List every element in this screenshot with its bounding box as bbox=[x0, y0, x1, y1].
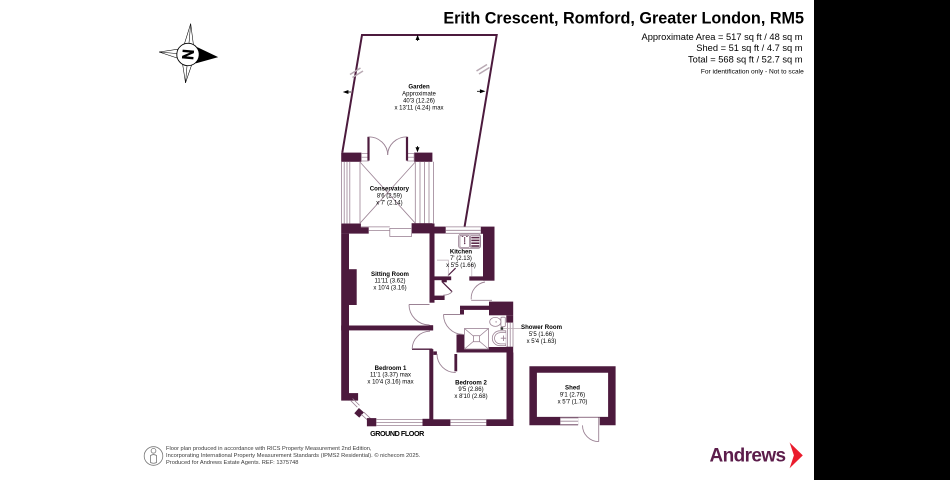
svg-text:x 7' (2.14): x 7' (2.14) bbox=[376, 201, 403, 207]
svg-text:Kitchen: Kitchen bbox=[450, 248, 473, 255]
svg-text:x 5'5 (1.66): x 5'5 (1.66) bbox=[446, 263, 476, 269]
svg-text:Shed = 51 sq ft / 4.7 sq m: Shed = 51 sq ft / 4.7 sq m bbox=[696, 43, 802, 53]
svg-text:Bedroom 2: Bedroom 2 bbox=[455, 379, 487, 386]
svg-text:8'6 (2.59): 8'6 (2.59) bbox=[377, 194, 402, 200]
svg-text:Produced for Andrews Estate Ag: Produced for Andrews Estate Agents. REF:… bbox=[166, 460, 298, 466]
svg-text:Conservatory: Conservatory bbox=[370, 186, 410, 193]
svg-text:5'5 (1.66): 5'5 (1.66) bbox=[529, 332, 554, 338]
svg-text:Shower Room: Shower Room bbox=[521, 324, 563, 331]
svg-text:Approximate Area = 517 sq ft /: Approximate Area = 517 sq ft / 48 sq m bbox=[642, 32, 803, 42]
svg-text:Floor plan produced in accorda: Floor plan produced in accordance with R… bbox=[166, 446, 372, 452]
svg-text:9'5 (2.86): 9'5 (2.86) bbox=[458, 387, 483, 393]
svg-text:Bedroom 1: Bedroom 1 bbox=[375, 365, 407, 372]
svg-text:7' (2.13): 7' (2.13) bbox=[450, 256, 472, 262]
svg-text:x 10'4 (3.16): x 10'4 (3.16) bbox=[373, 286, 406, 292]
svg-text:Andrews: Andrews bbox=[709, 446, 785, 467]
svg-text:GROUND FLOOR: GROUND FLOOR bbox=[370, 429, 425, 438]
svg-text:9'1 (2.76): 9'1 (2.76) bbox=[560, 393, 585, 399]
svg-text:Total = 568 sq ft / 52.7 sq m: Total = 568 sq ft / 52.7 sq m bbox=[688, 54, 803, 64]
svg-text:x 5'4 (1.63): x 5'4 (1.63) bbox=[527, 339, 557, 345]
svg-text:Approximate: Approximate bbox=[402, 92, 436, 98]
svg-text:Shed: Shed bbox=[565, 385, 580, 392]
svg-text:11'11 (3.62): 11'11 (3.62) bbox=[375, 279, 406, 285]
svg-text:Garden: Garden bbox=[408, 84, 430, 91]
svg-text:Erith Crescent, Romford, Great: Erith Crescent, Romford, Greater London,… bbox=[443, 9, 804, 27]
svg-text:11'1 (3.37) max: 11'1 (3.37) max bbox=[370, 373, 411, 379]
svg-text:x 10'4 (3.16) max: x 10'4 (3.16) max bbox=[367, 380, 413, 386]
svg-text:Sitting Room: Sitting Room bbox=[371, 271, 409, 278]
svg-text:x 8'10 (2.68): x 8'10 (2.68) bbox=[454, 394, 487, 400]
svg-text:x 5'7 (1.70): x 5'7 (1.70) bbox=[558, 400, 588, 406]
svg-text:x 13'11 (4.24) max: x 13'11 (4.24) max bbox=[394, 106, 443, 112]
svg-text:Incorporating International Pr: Incorporating International Property Mea… bbox=[166, 452, 421, 459]
svg-text:40'3 (12.26): 40'3 (12.26) bbox=[403, 99, 435, 105]
svg-text:For identification only - Not: For identification only - Not to scale bbox=[701, 68, 804, 75]
